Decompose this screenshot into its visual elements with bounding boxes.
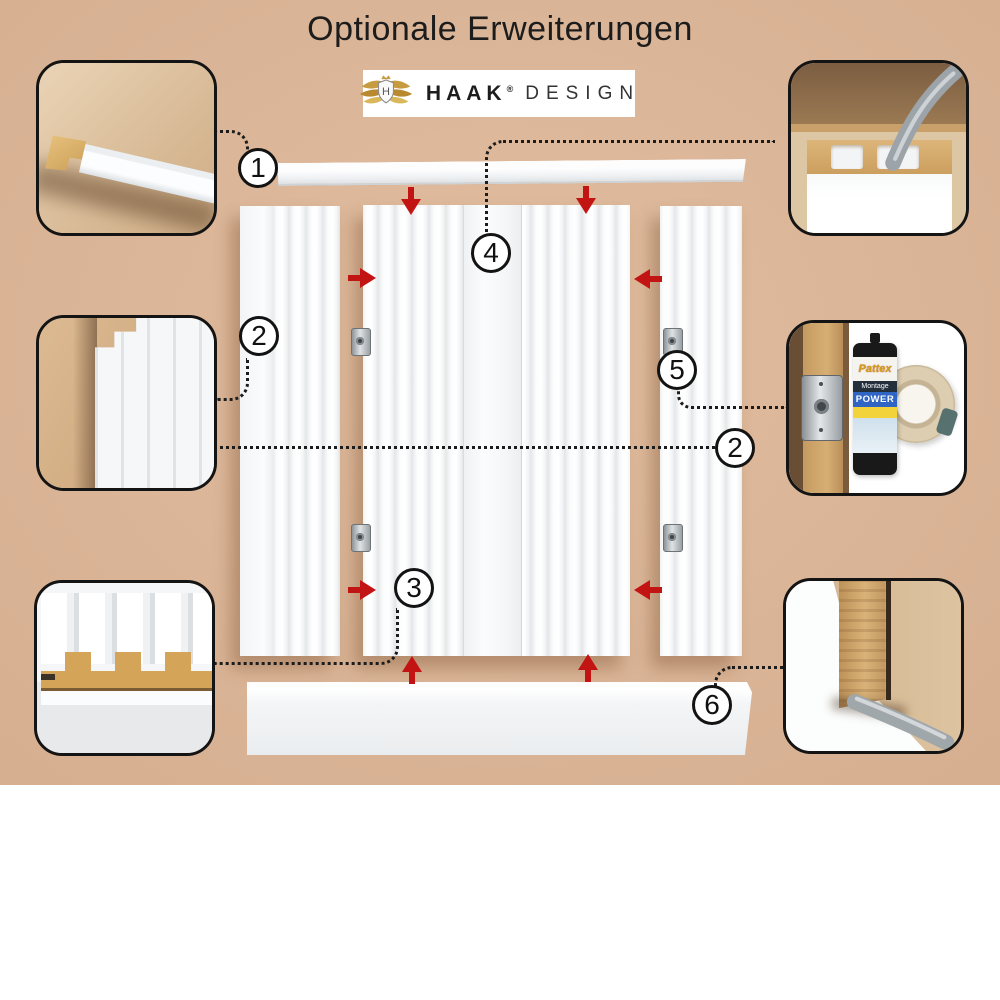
cable-icon (786, 581, 961, 751)
callout-6: 6 (692, 685, 732, 725)
cartridge-bottom (853, 453, 897, 475)
detail-photo-befestigung: Pattex Montage POWER (786, 320, 967, 496)
white-slab-profile (95, 316, 216, 490)
detail-photo-abdeckleiste (36, 60, 217, 236)
connector-line-6 (714, 666, 789, 689)
connector-line-2-left (214, 358, 249, 401)
arrow-down-icon (396, 186, 426, 216)
mdf-tooth (165, 652, 191, 671)
glue-variant-text: POWER (853, 392, 897, 407)
connector-line-3 (214, 608, 399, 665)
detail-photo-kabelkanal (788, 60, 969, 236)
product-infographic: Optionale Erweiterungen H HAAK® DESIGN (0, 0, 1000, 1000)
cartridge-cap-band (853, 343, 897, 357)
groove-notch (41, 674, 55, 680)
arrow-right-icon (347, 263, 377, 293)
panel-flutes (274, 206, 340, 656)
screw-icon (668, 533, 676, 541)
metal-claw-bracket (801, 375, 843, 441)
shadow-shape (73, 318, 97, 488)
callout-2-left: 2 (239, 316, 279, 356)
brand-name-secondary: DESIGN (525, 83, 640, 105)
arrow-up-icon (573, 653, 603, 683)
cover-strip-profile-photo (39, 63, 214, 233)
screw-icon (356, 533, 364, 541)
brand-name-primary: HAAK® (426, 82, 513, 106)
mdf-base (41, 671, 212, 691)
callout-4: 4 (471, 233, 511, 273)
glue-brand-text: Pattex (858, 363, 891, 375)
registered-mark: ® (507, 84, 514, 94)
end-strip-left (240, 206, 340, 656)
label-image-area (853, 418, 897, 453)
callout-5: 5 (657, 350, 697, 390)
callout-1: 1 (238, 148, 278, 188)
baseboard-fussleiste (247, 682, 752, 755)
board-edge (843, 323, 849, 493)
crest-icon: H (358, 73, 414, 115)
cartridge-body: Pattex Montage POWER (853, 343, 897, 475)
fastening-options-photo: Pattex Montage POWER (789, 323, 964, 493)
page-title: Optionale Erweiterungen (0, 10, 1000, 49)
claw-hole (814, 399, 829, 414)
panel-flat-face (240, 206, 274, 656)
detail-photo-fussleiste (783, 578, 964, 754)
panel-front-edge (41, 691, 212, 705)
detail-photo-wandpaneel (34, 580, 215, 756)
glue-line-text: Montage (853, 381, 897, 392)
screw-icon (668, 337, 676, 345)
mounting-claw (351, 524, 371, 552)
crest-letter: H (358, 86, 414, 98)
detail-photo-endleiste (36, 315, 217, 491)
screw-dot (819, 428, 823, 432)
connector-line-2-right (214, 446, 715, 449)
wall-panel-cross-section-photo (37, 583, 212, 753)
cable-icon (791, 63, 966, 233)
end-strip-profile-photo (39, 318, 214, 488)
arrow-left-icon (633, 575, 663, 605)
baseboard-cable-photo (786, 581, 961, 751)
screw-icon (356, 337, 364, 345)
callout-3: 3 (394, 568, 434, 608)
cable-channel-photo (791, 63, 966, 233)
arrow-right-icon (347, 575, 377, 605)
cartridge-nozzle (870, 333, 880, 343)
screw-dot (819, 382, 823, 386)
legend: 1 Abdeckleiste (für oberen Abschluss) 2 … (0, 785, 1000, 1000)
glue-brand-label: Pattex (853, 357, 897, 381)
arrow-up-icon (397, 655, 427, 685)
label-info-band (853, 407, 897, 418)
arrow-left-icon (633, 264, 663, 294)
callout-2-right: 2 (715, 428, 755, 468)
connector-line-4 (485, 140, 775, 233)
mdf-tooth (115, 652, 141, 671)
brand-logo: H HAAK® DESIGN (363, 70, 635, 117)
mounting-claw (663, 524, 683, 552)
mdf-tooth (65, 652, 91, 671)
connector-line-5 (677, 386, 789, 409)
mounting-claw (351, 328, 371, 356)
glue-cartridge: Pattex Montage POWER (853, 333, 897, 479)
